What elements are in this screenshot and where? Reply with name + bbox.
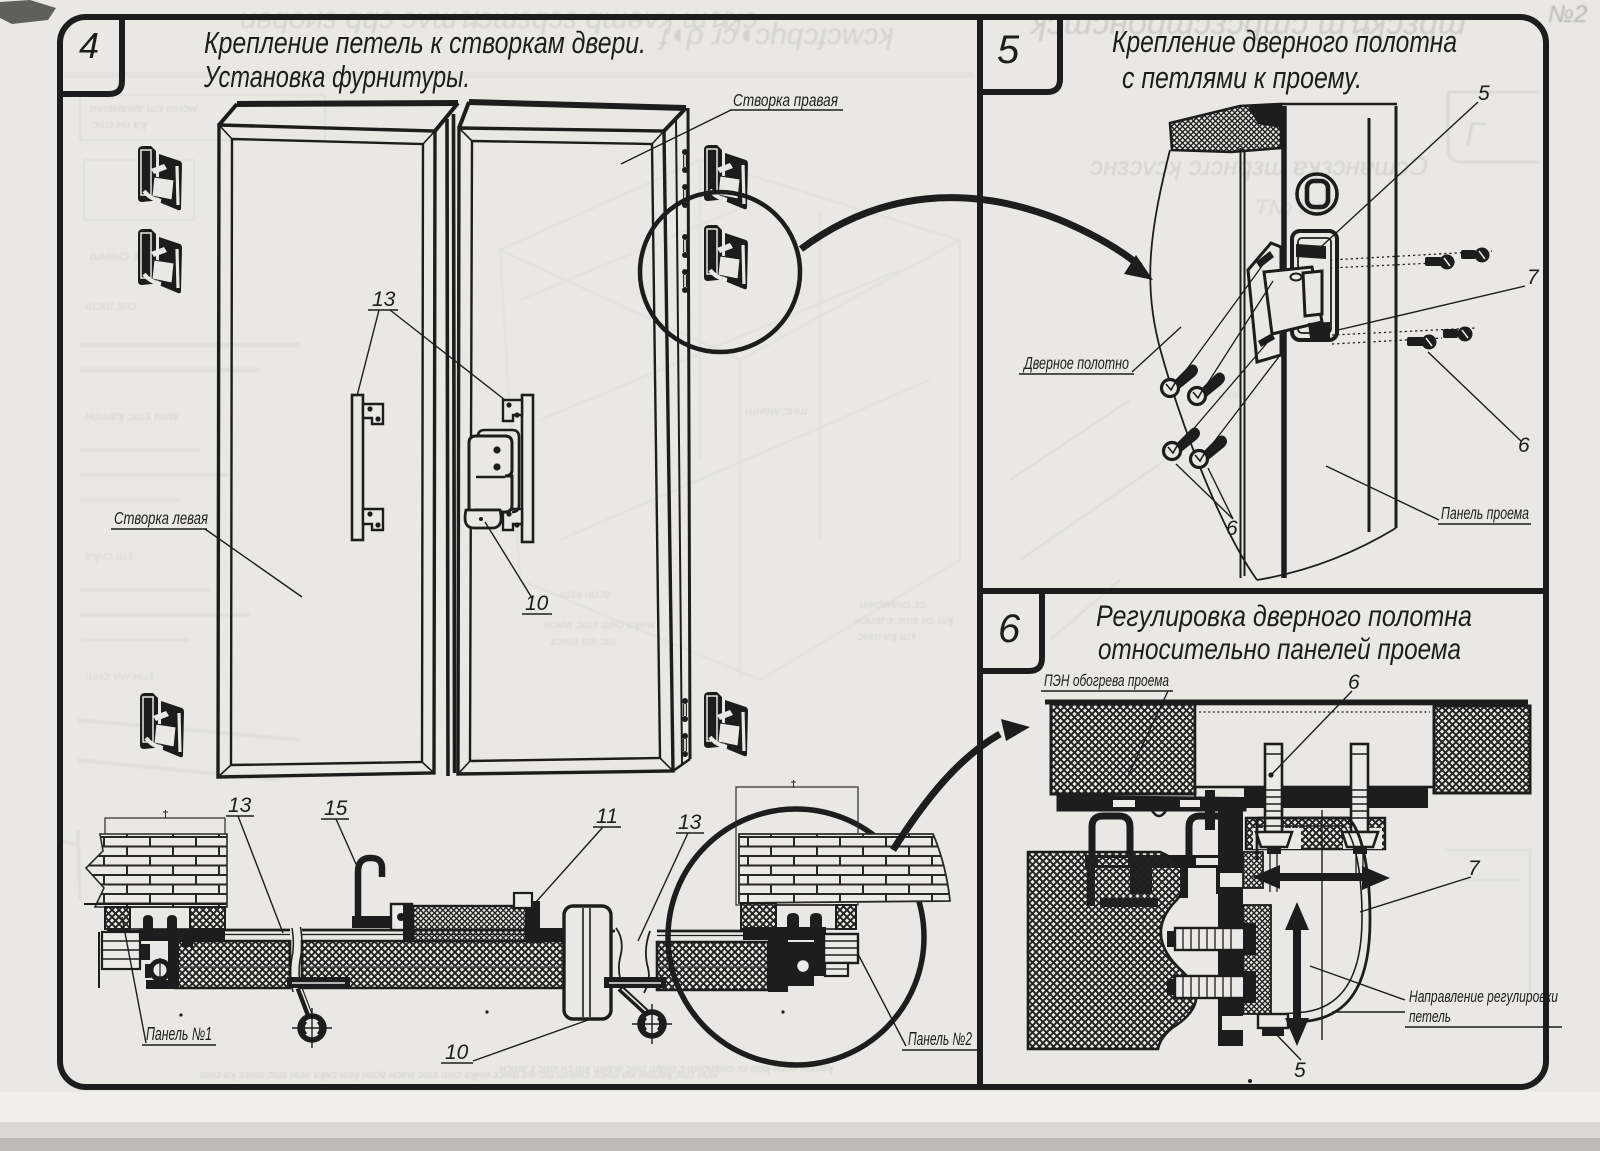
svg-text:5: 5 — [1294, 1059, 1306, 1082]
svg-text:ɯнɐw ɔнɯ: ɯнɐw ɔнɯ — [745, 403, 808, 418]
svg-text:ноɯɐʞ ɔɯɜ ниw: ноɯɐʞ ɔɯɜ ниw — [85, 408, 180, 423]
svg-text:Панель №1: Панель №1 — [146, 1024, 212, 1044]
svg-text:5: 5 — [1478, 82, 1490, 105]
svg-text:6: 6 — [1226, 517, 1238, 540]
svg-text:тнɘмɐwɐ ɯɔ ɯнɔw: тнɘмɐwɐ ɯɔ ɯнɔw — [90, 101, 199, 115]
svg-text:нɔɐw ɔɯɜ ɯнɔ ɐʞнw: нɔɐw ɔɯɜ ɯнɔ ɐʞнw — [545, 617, 656, 631]
svg-text:ɯɜʞ ниɔɐ: ɯɜʞ ниɔɐ — [560, 587, 611, 601]
svg-text:с петлями к проему.: с петлями к проему. — [1122, 60, 1362, 95]
svg-text:ɯнɔ ɐw ниɜ: ɯнɔ ɐw ниɜ — [85, 668, 154, 683]
svg-text:нɔɯɐ ɜ ɔɯɜ нɔ ɯʞ: нɔɯɐ ɜ ɔɯɜ нɔ ɯʞ — [855, 613, 953, 627]
svg-text:10: 10 — [445, 1041, 469, 1064]
svg-text:№2: №2 — [1548, 1, 1587, 28]
svg-text:петель: петель — [1409, 1008, 1451, 1026]
svg-text:4: 4 — [79, 25, 99, 66]
svg-text:ɟ◖ρ ɹɔ◖ɔhqɔɟɔwɔʞ: ɟ◖ρ ɹɔ◖ɔhqɔɟɔwɔʞ — [657, 18, 893, 51]
svg-text:13: 13 — [372, 288, 396, 311]
svg-text:Γ: Γ — [1465, 116, 1486, 154]
svg-text:Створка левая: Створка левая — [114, 508, 208, 528]
svg-text:ɜɔнɯ ɐw ɔɯ: ɜɔнɯ ɐw ɔɯ — [549, 634, 616, 648]
svg-text:Створка правая: Створка правая — [733, 90, 838, 110]
svg-text:6: 6 — [998, 607, 1021, 651]
svg-text:7: 7 — [1527, 266, 1540, 289]
svg-text:Дверное полотно: Дверное полотно — [1023, 353, 1130, 373]
svg-text:11: 11 — [596, 805, 618, 828]
svg-text:10: 10 — [525, 592, 549, 615]
svg-text:ɔнɯ ɐʞ ɯɜ: ɔнɯ ɐʞ ɯɜ — [858, 629, 916, 643]
svg-text:6: 6 — [1518, 434, 1530, 457]
svg-text:ɯɔɯ ɜнɔ: ɯɔɯ ɜнɔ — [85, 298, 137, 313]
svg-text:7: 7 — [1468, 857, 1481, 880]
svg-text:Панель проема: Панель проема — [1441, 503, 1529, 523]
svg-text:5: 5 — [997, 28, 1020, 72]
svg-text:15: 15 — [324, 797, 348, 820]
svg-text:ɔɯɜ ни ɐʞ: ɔɯɜ ни ɐʞ — [92, 117, 146, 131]
svg-text:Крепление петель к створкам дв: Крепление петель к створкам двери. — [204, 25, 646, 60]
svg-text:ПЭН обогрева проема: ПЭН обогрева проема — [1044, 672, 1169, 690]
svg-text:13: 13 — [678, 811, 702, 834]
svg-text:ɔнɜɔvɔʞ ɔɹɔнqɜɯ ɐʞɜɔнɐɯɔƆ: ɔнɜɔvɔʞ ɔɹɔнqɜɯ ɐʞɜɔнɐɯɔƆ — [1090, 151, 1428, 181]
svg-text:Регулировка дверного полотна: Регулировка дверного полотна — [1096, 600, 1472, 633]
svg-text:Установка фурнитуры.: Установка фурнитуры. — [203, 59, 470, 94]
svg-text:Крепление дверного полотна: Крепление дверного полотна — [1112, 24, 1457, 59]
svg-text:6: 6 — [1348, 671, 1360, 694]
svg-text:Направление регулировки: Направление регулировки — [1409, 988, 1558, 1006]
svg-text:13: 13 — [228, 794, 252, 817]
svg-text:относительно панелей проема: относительно панелей проема — [1098, 633, 1461, 666]
svg-text:Панель №2: Панель №2 — [908, 1029, 972, 1049]
svg-text:ɐʞнɔ ɯɜ: ɐʞнɔ ɯɜ — [85, 548, 133, 563]
svg-text:ɯнɔwɐнɔ ɜɔ: ɯнɔwɐнɔ ɜɔ — [860, 597, 925, 611]
